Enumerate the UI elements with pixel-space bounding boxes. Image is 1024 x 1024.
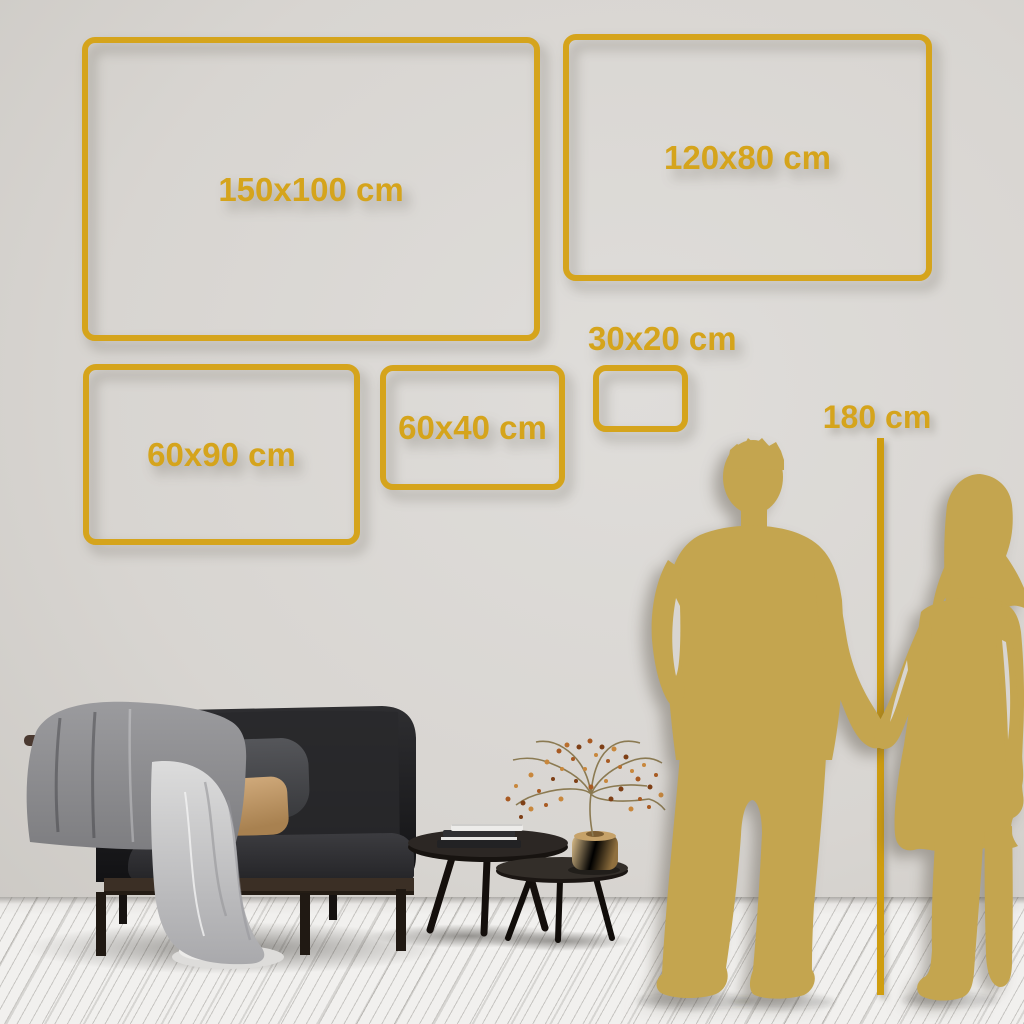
woman-silhouette — [874, 474, 1024, 1001]
man-silhouette — [652, 438, 887, 999]
size-guide-image: 150x100 cm 120x80 cm 60x90 cm 60x40 cm 3… — [0, 0, 1024, 1024]
couple-silhouettes — [0, 0, 1024, 1024]
